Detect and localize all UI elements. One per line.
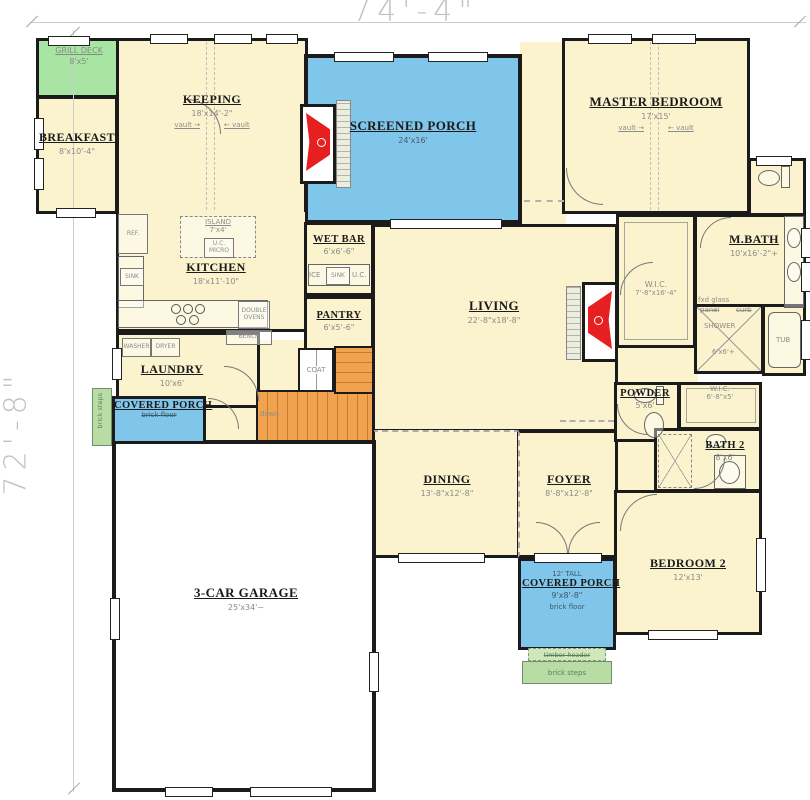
living-label: LIVING 22'-8"x18'-8" — [428, 298, 560, 325]
dining-label: DINING 13'-8"x12'-8" — [402, 472, 492, 498]
grill-deck-label: GRILL DECK 8'x5' — [44, 46, 114, 66]
vault-arrow-left: vault → — [174, 121, 200, 129]
foyer-label: FOYER 8'-8"x12'-8" — [530, 472, 608, 498]
gas-log-symbol — [594, 316, 603, 325]
window — [34, 158, 44, 190]
stairs-upper-run — [334, 346, 374, 394]
mbath-sink-2 — [787, 262, 801, 282]
garage-label: 3-CAR GARAGE 25'x34'~ — [184, 585, 308, 612]
screened-porch-label: SCREENED PORCH 24'x16' — [330, 118, 496, 145]
living-fireplace — [582, 282, 618, 362]
hall-to-powder — [614, 346, 698, 386]
front-door-opening — [534, 553, 602, 563]
keeping-label: KEEPING 18'x14'-2" vault → ← vault — [142, 92, 282, 129]
garage-door-gap — [250, 787, 332, 797]
wic2-label: W.I.C. 6'-8"x5' — [684, 385, 756, 401]
floor-plan: 74'-4" 72'-8" brick steps timber header … — [0, 0, 810, 800]
front-brick-steps: brick steps — [522, 661, 612, 684]
kitchen-label: KITCHEN 18'x11'-10" — [166, 260, 266, 286]
panel-label: panel — [700, 306, 719, 314]
window — [756, 538, 766, 592]
window — [756, 156, 792, 166]
window — [112, 348, 122, 380]
fxd-glass-label: fxd glass — [698, 296, 729, 304]
wet-bar-sink: SINK — [326, 267, 350, 285]
window — [801, 262, 810, 292]
window — [56, 208, 96, 218]
cooktop — [170, 303, 210, 325]
master-toilet-room — [748, 158, 806, 216]
mbath-label: M.BATH 10'x16'-2"+ — [712, 232, 796, 258]
window — [648, 630, 718, 640]
pantry-label: PANTRY 6'x5'-6" — [306, 310, 372, 332]
tub-label: TUB — [776, 336, 790, 344]
master-shower-room — [694, 304, 764, 374]
island-label: ISLAND 7'x4' — [182, 218, 254, 234]
shower-dims: 6'x6'+ — [712, 348, 735, 356]
ice-maker-label: ICE — [309, 271, 320, 279]
window — [652, 34, 696, 44]
mud-bench: BENCH — [226, 330, 272, 345]
living-fireplace-bricks — [566, 286, 581, 360]
vault-arrow-left: vault → — [618, 124, 644, 132]
dimension-tick — [68, 782, 80, 794]
vault-arrow-right: ← vault — [224, 121, 250, 129]
powder-label: POWDER 5'x6' — [616, 388, 674, 410]
window — [369, 652, 379, 692]
master-wic-label: W.I.C. 7'-8"x16'-4" — [620, 280, 692, 297]
window — [48, 36, 90, 46]
laundry-label: LAUNDRY 10'x6' — [126, 362, 218, 388]
bath2-shower — [658, 434, 692, 488]
toilet — [758, 170, 780, 186]
cased-opening — [524, 200, 564, 202]
wet-bar-label: WET BAR 6'x6'-6" — [304, 234, 374, 256]
window — [214, 34, 252, 44]
garage-door-gap — [165, 787, 213, 797]
coat-label: COAT — [300, 366, 332, 374]
front-brick-steps-label: brick steps — [548, 669, 586, 677]
window — [398, 553, 485, 563]
window — [266, 34, 298, 44]
overall-width-dimension: 74'-4" — [352, 0, 478, 29]
double-ovens: DOUBLE OVENS — [238, 301, 270, 329]
window — [150, 34, 188, 44]
bedroom2-label: BEDROOM 2 12'x13' — [640, 556, 736, 582]
garage-room — [112, 440, 376, 792]
side-brick-steps: brick steps — [92, 388, 112, 446]
window — [801, 228, 810, 258]
master-bedroom-label: MASTER BEDROOM 17'x15' vault → ← vault — [576, 94, 736, 132]
gas-log-symbol — [317, 138, 326, 147]
screen-panel — [334, 52, 394, 62]
dryer: DRYER — [151, 338, 180, 357]
breakfast-label: BREAKFAST 8'x10'-4" — [38, 130, 116, 156]
bath2-label: BATH 2 8'x6' — [694, 440, 756, 462]
sliding-door — [390, 219, 502, 229]
window — [588, 34, 632, 44]
cased-opening — [560, 420, 614, 422]
timber-header: timber header — [528, 648, 606, 661]
timber-header-label: timber header — [544, 651, 590, 659]
window — [110, 598, 120, 640]
screen-panel — [428, 52, 488, 62]
hall-to-master — [520, 42, 566, 226]
stairs-down-label: down — [260, 410, 279, 418]
refrigerator: REF. — [118, 214, 148, 254]
curb-label: curb — [736, 306, 752, 314]
shower-label: SHOWER — [704, 322, 735, 330]
uc-micro: U.C. MICRO — [204, 238, 234, 258]
kitchen-sink: SINK — [120, 268, 144, 286]
side-brick-steps-label: brick steps — [96, 393, 104, 428]
side-porch-label: COVERED PORCH brick floor — [114, 400, 204, 419]
washer: WASHER — [122, 338, 151, 357]
vault-arrow-right: ← vault — [668, 124, 694, 132]
front-porch-label: 12' TALL COVERED PORCH 9'x8'-8" brick fl… — [522, 570, 612, 611]
toilet-tank — [781, 166, 790, 188]
overall-height-dimension: 72'-8" — [0, 338, 34, 528]
window — [801, 320, 810, 360]
uc-fridge-label: U.C. — [352, 271, 366, 279]
